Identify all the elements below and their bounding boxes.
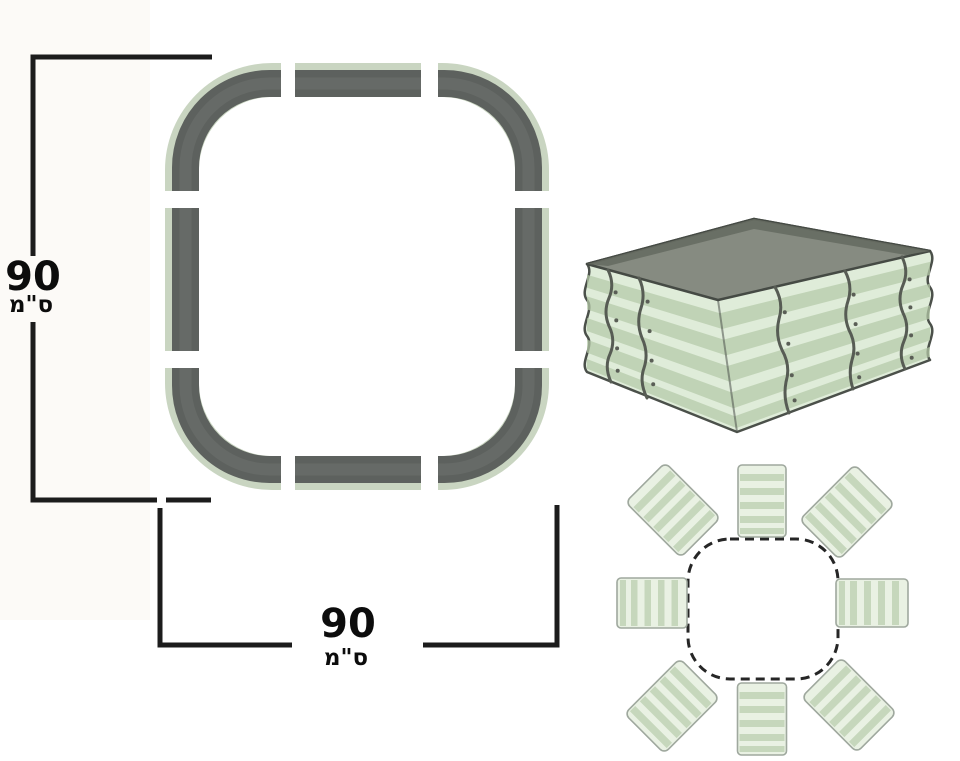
raised-bed-dimension-diagram: 90 ס"מ 90 ס"מ (0, 0, 960, 761)
panel-left-straight (617, 578, 687, 628)
exploded-panels-view (617, 463, 908, 755)
panel-bottom-right-corner (802, 658, 897, 753)
assembled-outline-dashed (688, 539, 838, 679)
panel-right-straight (836, 579, 908, 627)
panel-top-straight (738, 465, 786, 537)
frame-highlight (186, 84, 529, 470)
panel-bottom-straight (738, 683, 787, 755)
vertical-dimension-unit: ס"מ (9, 292, 53, 318)
horizontal-dimension: 90 ס"מ (160, 505, 557, 671)
frame-gray-body (186, 84, 529, 470)
frame-green-edge (182, 80, 532, 473)
assembled-bed-illustration (585, 219, 933, 432)
horizontal-dimension-unit: ס"מ (324, 645, 368, 671)
top-view-frame (155, 52, 559, 499)
horizontal-dimension-value: 90 (320, 601, 376, 647)
panel-top-right-corner (800, 465, 895, 560)
panel-bottom-left-corner (625, 659, 720, 754)
panel-top-left-corner (626, 463, 721, 558)
